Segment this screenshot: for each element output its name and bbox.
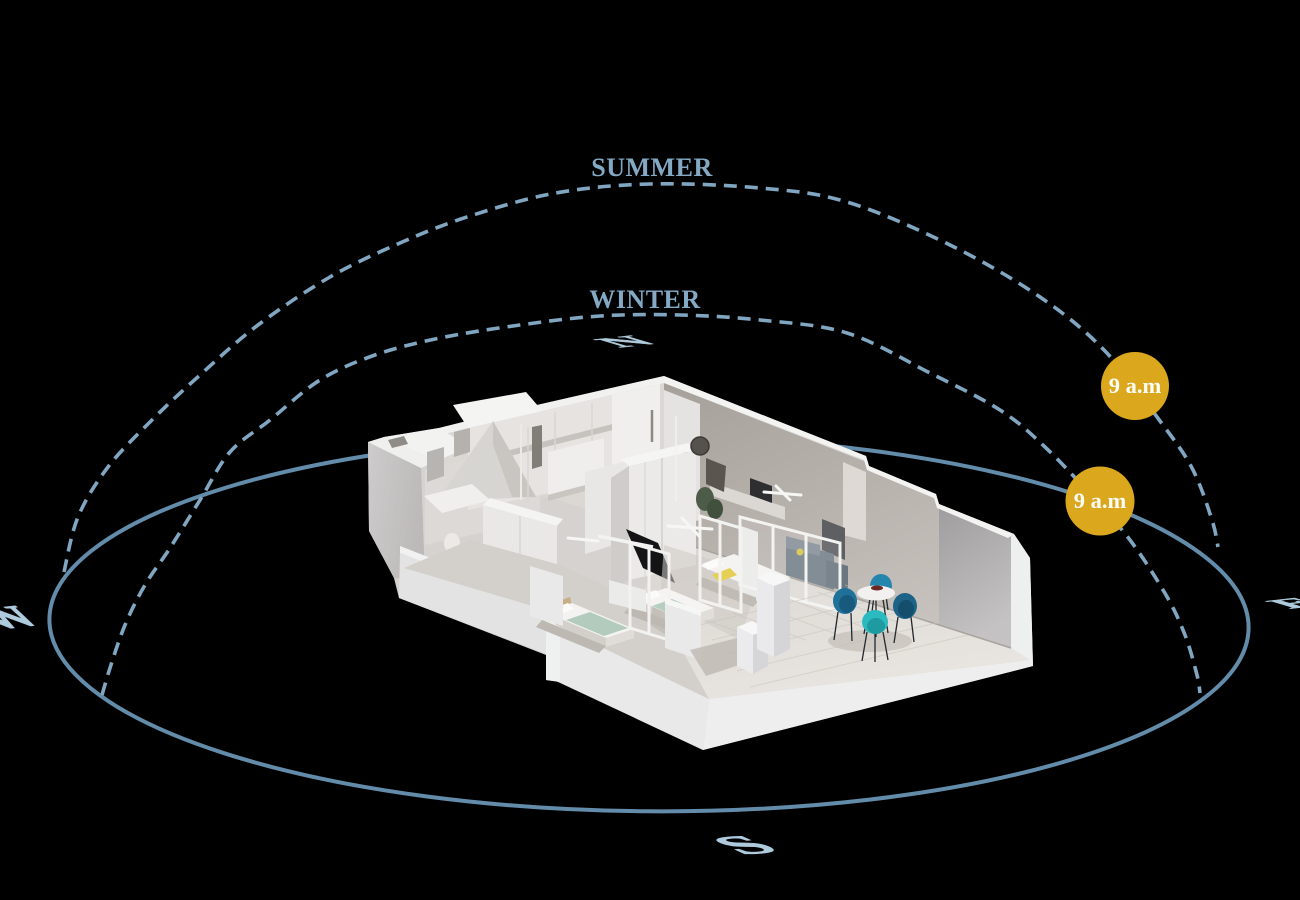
svg-text:N: N <box>584 333 667 350</box>
svg-text:WINTER: WINTER <box>589 285 700 314</box>
svg-text:9 a.m: 9 a.m <box>1074 488 1127 513</box>
svg-text:9 a.m: 9 a.m <box>1109 373 1162 398</box>
svg-text:E: E <box>1257 595 1300 611</box>
svg-text:SUMMER: SUMMER <box>591 153 712 182</box>
svg-text:S: S <box>695 830 793 860</box>
